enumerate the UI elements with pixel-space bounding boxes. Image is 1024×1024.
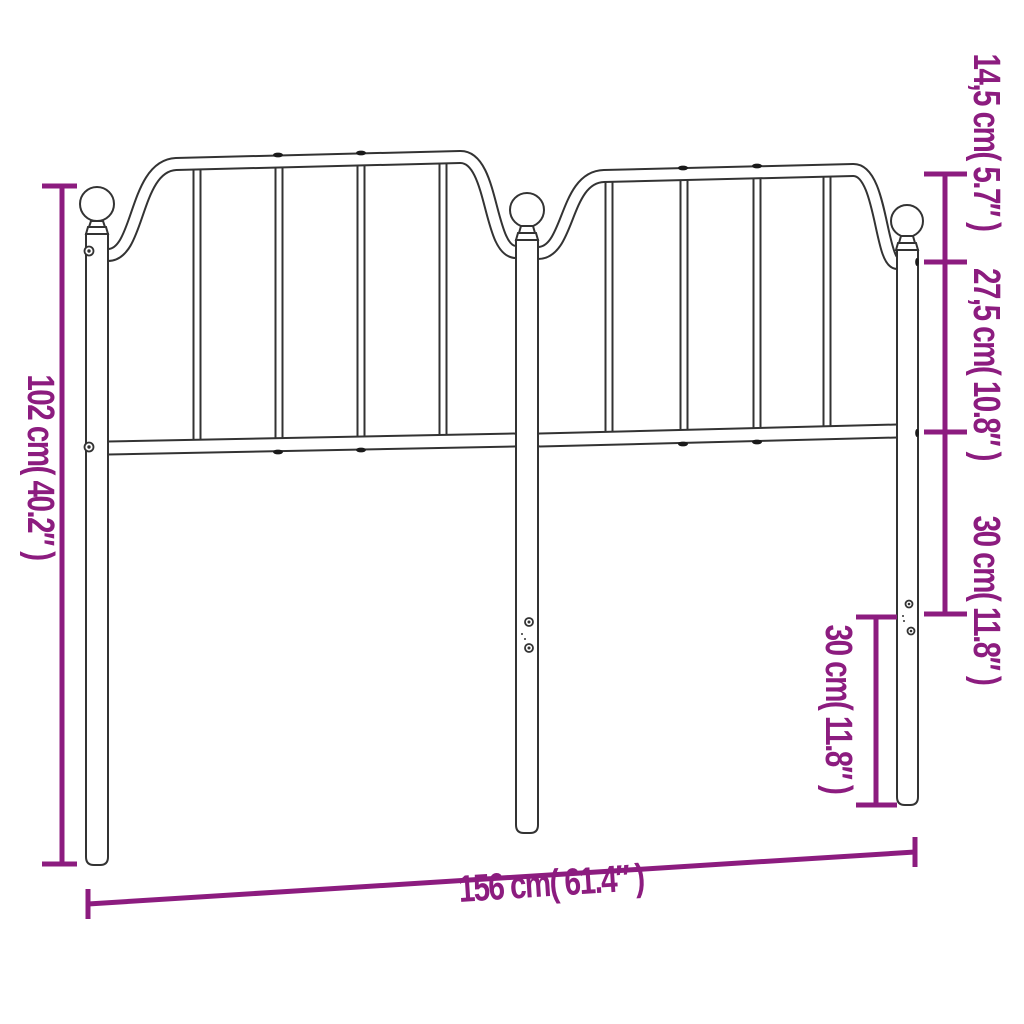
left-ball-finial <box>80 187 114 221</box>
center-ball-finial <box>510 193 544 227</box>
dim-finial-drop-label: 14,5 cm( 5.7″ ) <box>967 54 1005 231</box>
left-post <box>80 187 114 865</box>
dim-line-leg-extension <box>856 617 897 805</box>
dim-line-right-segments <box>924 174 967 614</box>
balusters-right-panel <box>609 171 827 438</box>
headboard-dimension-diagram: 102 cm( 40.2″ ) 156 cm( 61.4″ ) 14,5 cm(… <box>0 0 1024 1024</box>
dim-height-label: 102 cm( 40.2″ ) <box>21 374 59 559</box>
right-ball-finial <box>891 205 923 237</box>
center-post <box>510 193 544 833</box>
top-rail-left <box>108 157 516 255</box>
balusters-left-panel <box>197 157 443 447</box>
dim-leg-extension-label: 30 cm( 11.8″ ) <box>819 625 857 794</box>
joint-dots <box>273 151 919 455</box>
right-post <box>891 205 923 805</box>
headboard-frame <box>80 157 923 865</box>
dim-lower-panel-label: 30 cm( 11.8″ ) <box>967 516 1005 685</box>
top-rail-right <box>538 170 897 263</box>
dim-upper-panel-label: 27,5 cm( 10.8″ ) <box>967 268 1005 460</box>
lower-rail <box>108 431 897 448</box>
